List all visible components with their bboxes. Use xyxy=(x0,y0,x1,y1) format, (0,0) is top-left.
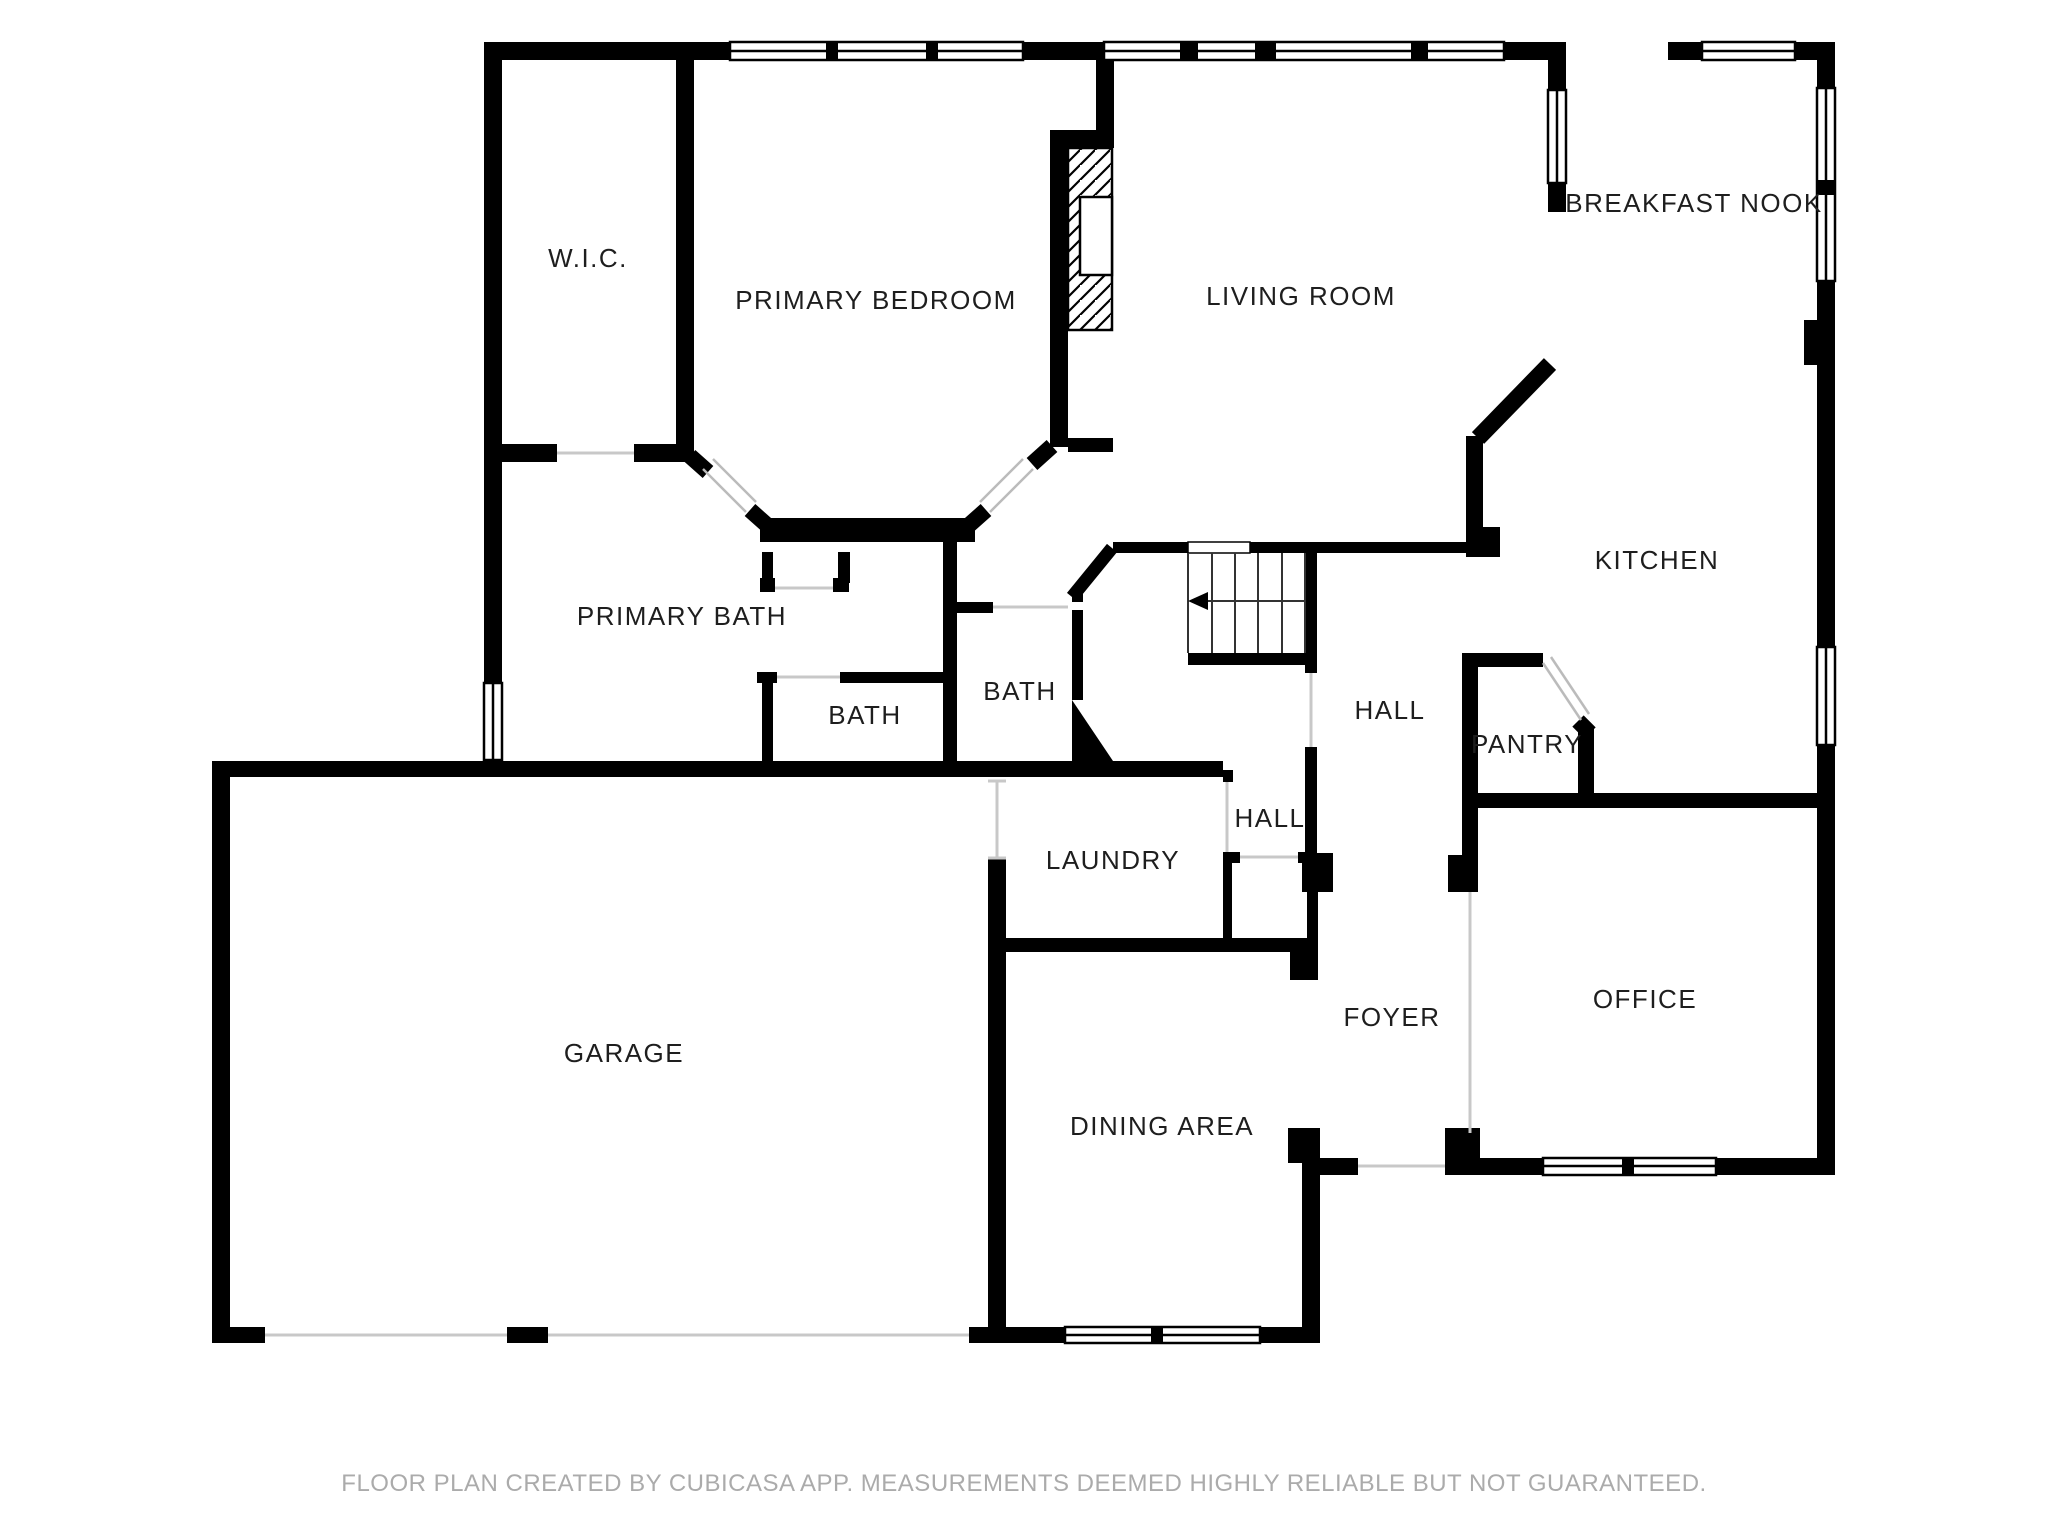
room-label-primary-bath: PRIMARY BATH xyxy=(577,601,787,631)
room-label-garage: GARAGE xyxy=(564,1038,684,1068)
room-label-wic: W.I.C. xyxy=(548,243,628,273)
room-label-hall-main: HALL xyxy=(1354,695,1425,725)
stair-wall-notch xyxy=(1072,602,1083,610)
room-label-bath-left: BATH xyxy=(828,700,901,730)
room-label-hall-small: HALL xyxy=(1234,803,1305,833)
room-label-primary-bedroom: PRIMARY BEDROOM xyxy=(735,285,1017,315)
floor-plan-svg: W.I.C.PRIMARY BEDROOMLIVING ROOMBREAKFAS… xyxy=(0,0,2048,1536)
room-label-foyer: FOYER xyxy=(1343,1002,1440,1032)
room-label-living-room: LIVING ROOM xyxy=(1206,281,1396,311)
room-label-kitchen: KITCHEN xyxy=(1595,545,1720,575)
stair-top-opening xyxy=(1188,542,1250,553)
room-label-breakfast-nook: BREAKFAST NOOK xyxy=(1565,188,1822,218)
room-label-office: OFFICE xyxy=(1593,984,1697,1014)
room-label-laundry: LAUNDRY xyxy=(1046,845,1180,875)
footer-disclaimer: FLOOR PLAN CREATED BY CUBICASA APP. MEAS… xyxy=(0,1470,2048,1498)
room-label-dining-area: DINING AREA xyxy=(1070,1111,1254,1141)
room-label-pantry: PANTRY xyxy=(1471,729,1583,759)
room-label-bath-right: BATH xyxy=(983,676,1056,706)
fireplace xyxy=(1068,148,1112,330)
